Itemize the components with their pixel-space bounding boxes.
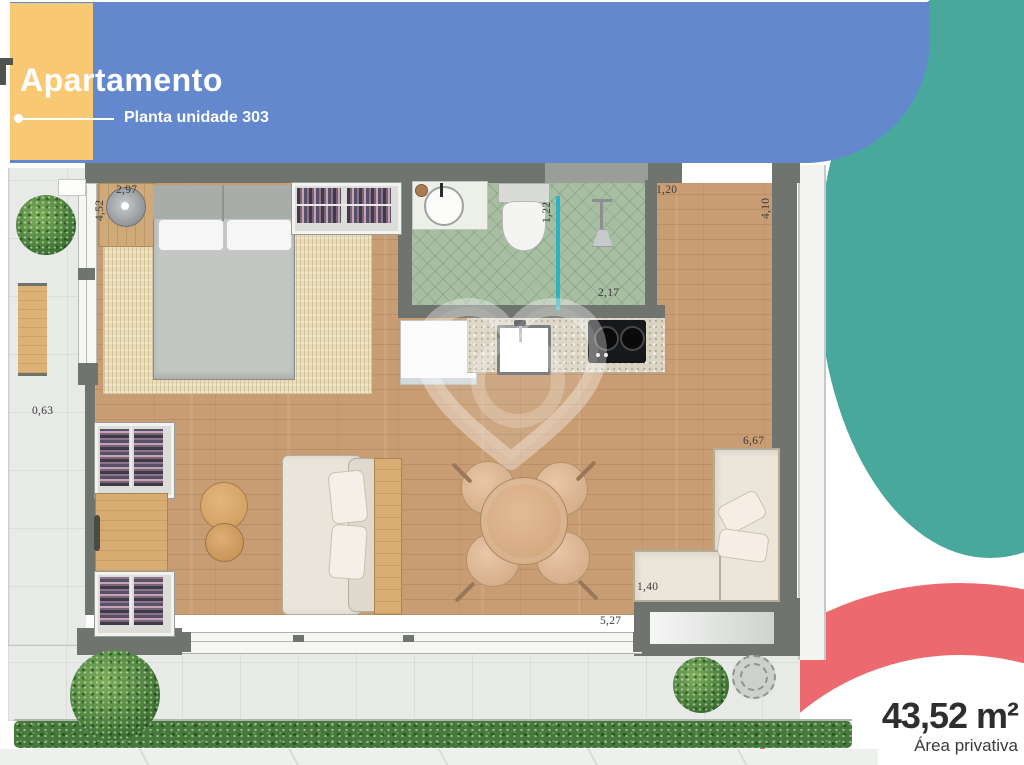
kitchen-faucet-stem [519,326,522,342]
measure-entry-width: 1,20 [656,184,677,196]
area-label: Área privativa [882,736,1018,756]
sink-faucet-icon [440,183,443,197]
wall-top-light [545,163,648,183]
wall-window-end [78,363,98,385]
pouf-small [205,523,244,562]
pavement [0,749,878,765]
entry-door-opening [682,163,780,183]
closet-rod [130,575,132,627]
leader-line [22,118,114,120]
kitchen-sink [497,325,551,375]
burner-icon [594,326,619,351]
wardrobe-rod [295,204,392,206]
measure-living-width: 5,27 [600,615,621,627]
closet-rod [130,426,132,489]
measure-bedroom-width: 2,97 [116,184,137,196]
area-annotation: 43,52 m² Área privativa [882,696,1018,756]
wall-kitchen-back [398,305,665,318]
sofa-pillow [328,524,368,580]
soap-dish [415,184,428,197]
mandala-inner [740,663,768,691]
shower-pipe [600,201,603,231]
hanging-clothes [100,429,129,486]
window-tick [293,635,304,642]
daybed-horizontal [633,550,721,602]
measure-entry-depth: 4,10 [760,198,772,219]
area-value: 43,52 m² [882,696,1018,736]
bottom-right-inset [650,612,774,644]
toilet-tank [498,183,550,203]
bush-top-left [16,195,76,255]
sofa-pillow [327,469,368,524]
bush-bottom-left [70,650,160,740]
bathroom-sink [424,186,464,226]
measure-shower-width: 2,17 [598,287,619,299]
window-mullion [78,268,95,280]
measure-bedroom-depth: 4,52 [94,200,106,221]
hanging-clothes [100,577,129,625]
window-line [86,185,87,381]
edge-wall-mark [0,58,6,85]
fridge [400,320,477,385]
closet-upper [95,423,174,498]
page-subtitle: Planta unidade 303 [124,109,269,127]
toilet-bowl [502,201,546,251]
measure-daybed-width: 1,40 [637,581,658,593]
bed-pillow [158,219,224,251]
closet-lower [95,572,174,636]
desk-chair [94,515,100,551]
walkway-right [798,165,826,660]
wardrobe-top [292,183,401,234]
wall-left-lower [85,378,95,615]
console-table [374,458,402,615]
bed-center-seam [222,185,224,221]
table-lamp-center [121,202,129,210]
terrace-bench [18,283,47,376]
window-tick [403,635,414,642]
cooktop-knob [596,353,600,357]
bush-bottom-right [673,657,729,713]
desk-cabinet [95,493,168,572]
planter-box [58,179,86,196]
wall-bath-right [645,180,657,315]
measure-living-depth: 6,67 [743,435,764,447]
burner-icon [620,326,645,351]
measure-bath-partition: 1,22 [541,202,553,223]
dining-table [480,477,568,565]
hanging-clothes [134,577,163,625]
floor-plan: 4,52 2,97 1,22 2,17 1,20 4,10 0,63 6,67 … [8,163,868,765]
measure-terrace-width: 0,63 [32,405,53,417]
hanging-clothes [134,429,163,486]
window-tick [182,632,191,652]
shower-glass-partition [556,196,560,310]
window-tick [633,632,642,652]
page-title: Apartamento [20,62,223,99]
bed-pillow [226,219,292,251]
cooktop-knob [604,353,608,357]
